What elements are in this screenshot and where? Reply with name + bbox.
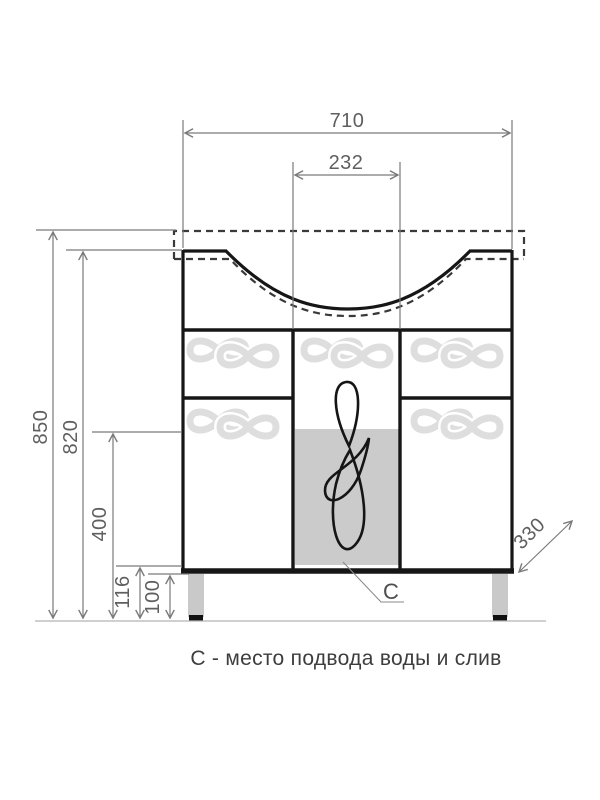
water-supply-zone: [295, 429, 399, 565]
dim-label-232: 232: [329, 152, 364, 174]
door-motif-right: [414, 412, 500, 436]
cabinet-top-curve: [183, 251, 512, 309]
dim-label-820: 820: [60, 420, 82, 455]
dim-label-100: 100: [142, 580, 164, 615]
door-motif-left: [190, 412, 276, 436]
dim-label-850: 850: [30, 410, 52, 445]
dimension-overall-width: [183, 120, 512, 249]
dim-label-400: 400: [89, 507, 111, 542]
vanity-technical-drawing: 710 232 850 820 400 116 100 330 C: [0, 0, 600, 800]
dim-label-116: 116: [112, 575, 134, 608]
leg-right-foot: [493, 615, 507, 621]
leg-right: [492, 574, 508, 621]
leg-left-foot: [189, 615, 203, 621]
drawing-caption: С - место подвода воды и слив: [190, 647, 501, 670]
dim-label-710: 710: [330, 110, 365, 132]
drawer-motif-left: [190, 341, 276, 365]
marker-label-c: C: [383, 579, 399, 604]
leg-left: [188, 574, 204, 621]
drawing-canvas: 710 232 850 820 400 116 100 330 C: [0, 0, 600, 800]
dimension-overall-height: [36, 230, 176, 618]
basin-dashed-outline: [174, 231, 524, 316]
dimension-cabinet-height: [66, 250, 182, 618]
drawer-motif-right: [414, 341, 500, 365]
drawer-motif-center: [304, 341, 390, 365]
